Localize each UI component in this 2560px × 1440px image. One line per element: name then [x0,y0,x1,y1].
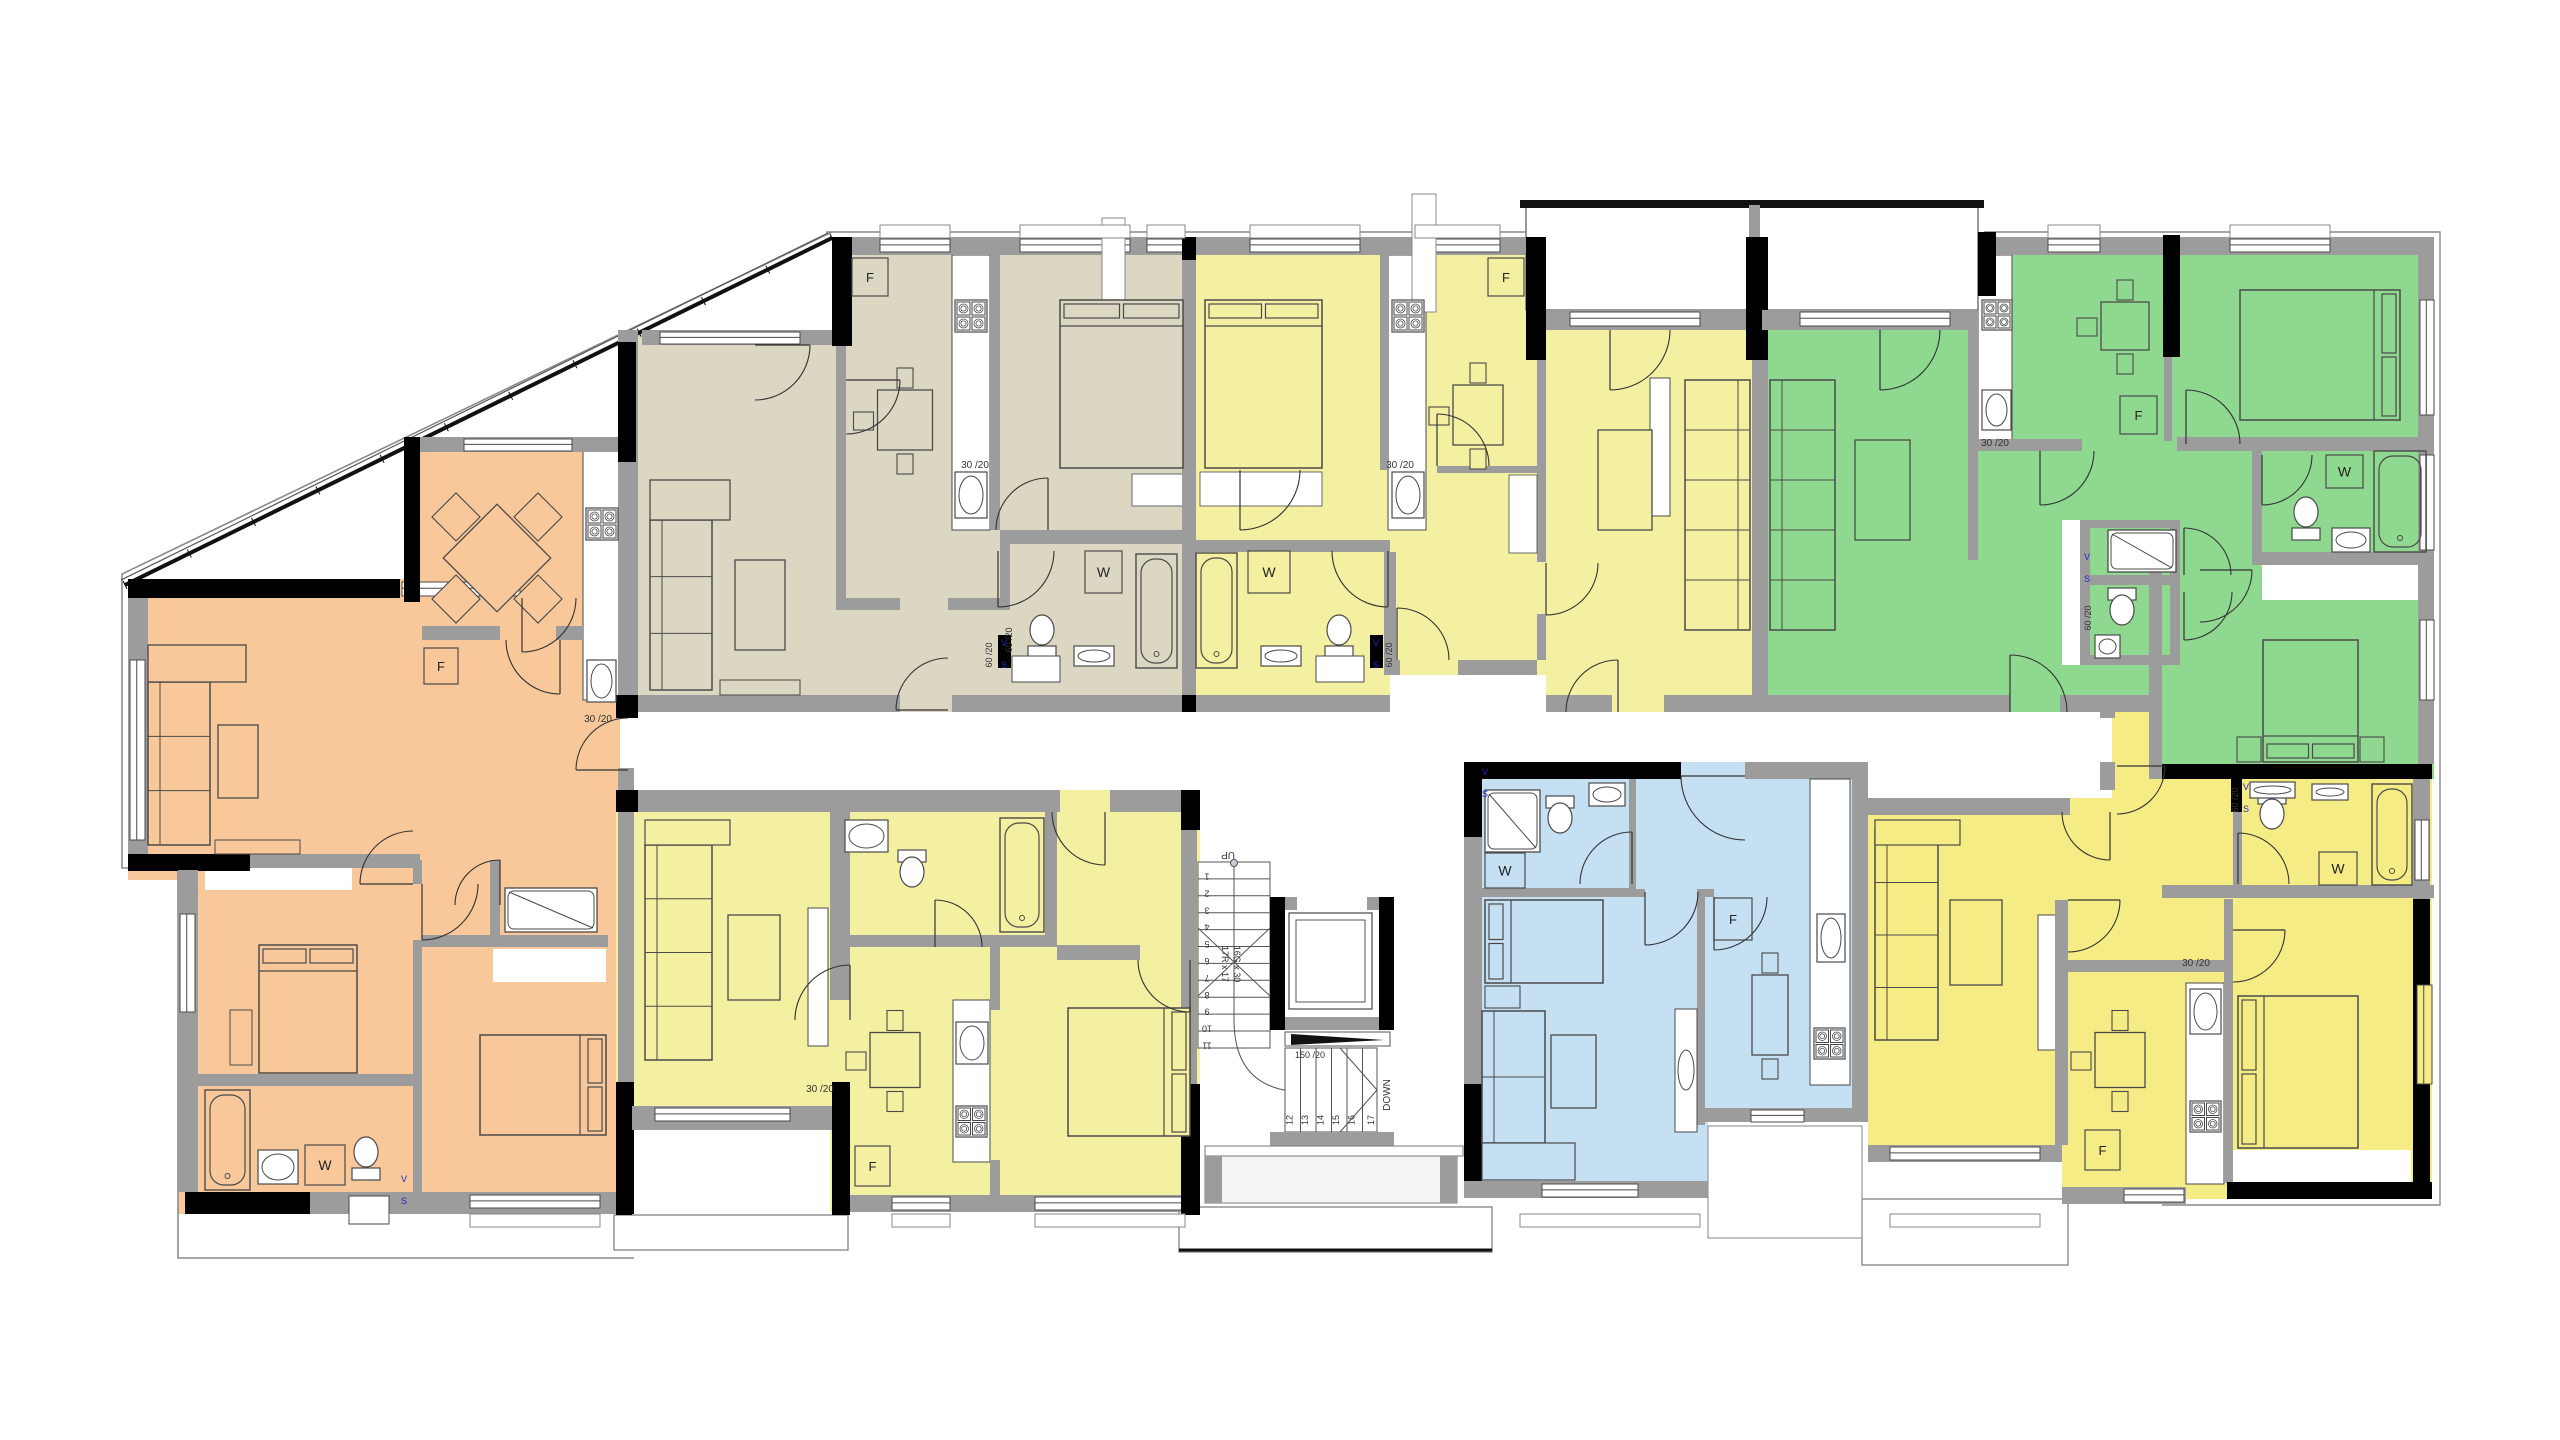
svg-text:8: 8 [1204,990,1209,1000]
svg-text:UP: UP [1221,849,1235,860]
svg-text:F: F [437,659,445,674]
svg-text:13: 13 [1300,1115,1310,1125]
svg-text:30 /20: 30 /20 [1981,438,2009,449]
svg-text:S: S [1001,660,1007,670]
svg-text:9: 9 [1204,1007,1209,1017]
svg-text:V: V [2243,782,2249,792]
svg-text:V: V [1373,638,1379,648]
svg-text:W: W [1097,564,1111,580]
svg-text:F: F [2099,1143,2107,1158]
svg-text:2: 2 [1204,888,1209,898]
svg-text:F: F [1502,270,1510,285]
svg-text:30 /20: 30 /20 [1386,460,1414,471]
svg-text:12: 12 [1285,1115,1295,1125]
svg-text:V: V [2084,552,2090,562]
svg-text:30 /20: 30 /20 [2182,958,2210,969]
svg-text:S: S [1482,789,1488,799]
svg-text:10: 10 [1202,1024,1212,1034]
svg-text:W: W [1498,863,1512,879]
svg-text:F: F [1729,912,1737,927]
svg-text:4: 4 [1204,922,1209,932]
svg-text:DOWN: DOWN [1382,1079,1393,1111]
svg-text:F: F [2135,408,2143,423]
svg-text:60 /20: 60 /20 [2083,605,2093,630]
svg-text:6: 6 [1204,956,1209,966]
svg-text:14: 14 [1316,1115,1326,1125]
svg-text:V: V [1482,767,1488,777]
svg-text:17: 17 [1366,1115,1376,1125]
svg-text:F: F [869,1159,877,1174]
svg-text:1: 1 [1204,871,1209,881]
svg-text:3: 3 [1204,905,1209,915]
svg-text:W: W [318,1157,332,1173]
svg-text:150 /20: 150 /20 [1295,1050,1325,1060]
svg-text:30 /20: 30 /20 [584,714,612,725]
svg-text:30 /20: 30 /20 [806,1084,834,1095]
svg-text:5: 5 [1204,939,1209,949]
svg-text:W: W [2338,464,2352,480]
svg-text:S: S [2084,574,2090,584]
svg-text:11: 11 [1202,1040,1211,1050]
svg-text:60 /20: 60 /20 [2230,787,2240,812]
svg-text:V: V [401,1174,407,1184]
svg-text:30 /20: 30 /20 [961,460,989,471]
svg-text:7: 7 [1204,973,1209,983]
svg-text:S: S [1373,660,1379,670]
svg-text:F: F [866,270,874,285]
svg-text:S: S [401,1196,407,1206]
svg-text:S: S [2243,804,2249,814]
svg-text:V: V [1001,638,1007,648]
svg-text:17R x 17: 17R x 17 [1220,946,1230,982]
svg-text:15: 15 [1331,1115,1341,1125]
svg-text:60 /20: 60 /20 [984,642,994,667]
svg-text:W: W [2331,861,2345,877]
svg-text:W: W [1262,564,1276,580]
svg-text:60 /20: 60 /20 [1384,642,1394,667]
